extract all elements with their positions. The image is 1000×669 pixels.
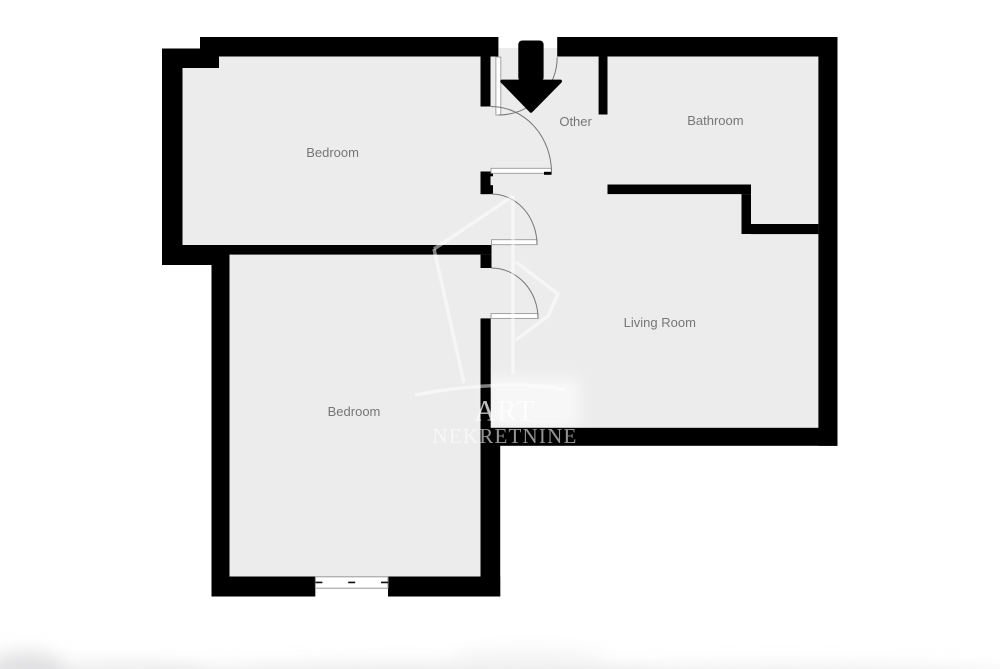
- svg-text:Bedroom: Bedroom: [328, 404, 381, 419]
- svg-text:ART: ART: [474, 395, 535, 428]
- svg-text:Bathroom: Bathroom: [687, 113, 743, 128]
- svg-text:Other: Other: [559, 114, 592, 129]
- svg-text:Living Room: Living Room: [624, 315, 696, 330]
- svg-text:Bedroom: Bedroom: [306, 145, 359, 160]
- svg-text:NEKRETNINE: NEKRETNINE: [433, 424, 578, 448]
